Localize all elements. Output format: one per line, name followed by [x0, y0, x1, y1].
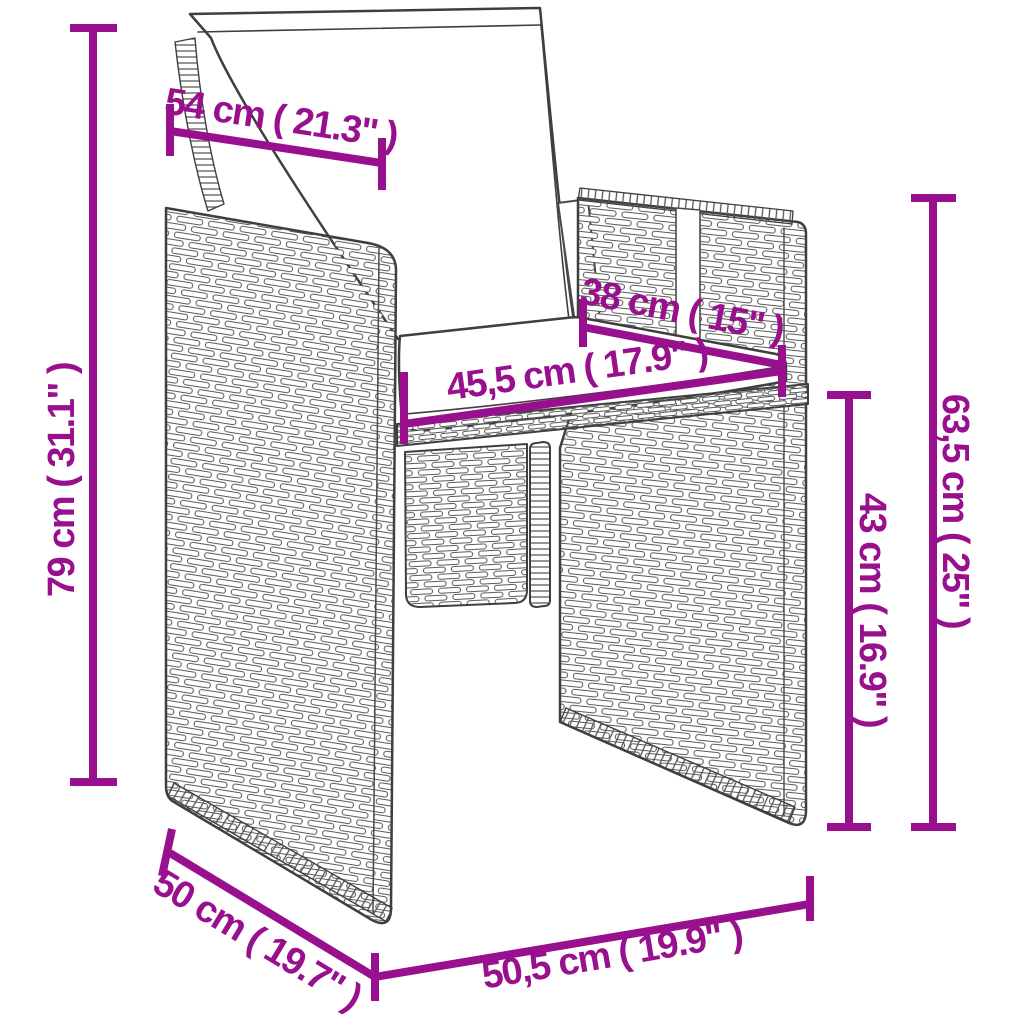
front-apron: [405, 444, 527, 607]
dimension-diagram: 54 cm ( 21.3" ) 79 cm ( 31.1" ) 38 cm ( …: [0, 0, 1024, 1024]
left-arm-panel: [166, 208, 396, 923]
dim-label-seat-height: 43 cm ( 16.9" ): [853, 493, 891, 727]
dim-label-overall-height: 79 cm ( 31.1" ): [43, 363, 81, 597]
front-left-leg: [530, 442, 550, 607]
dim-label-armrest-height: 63,5 cm ( 25" ): [936, 394, 974, 628]
